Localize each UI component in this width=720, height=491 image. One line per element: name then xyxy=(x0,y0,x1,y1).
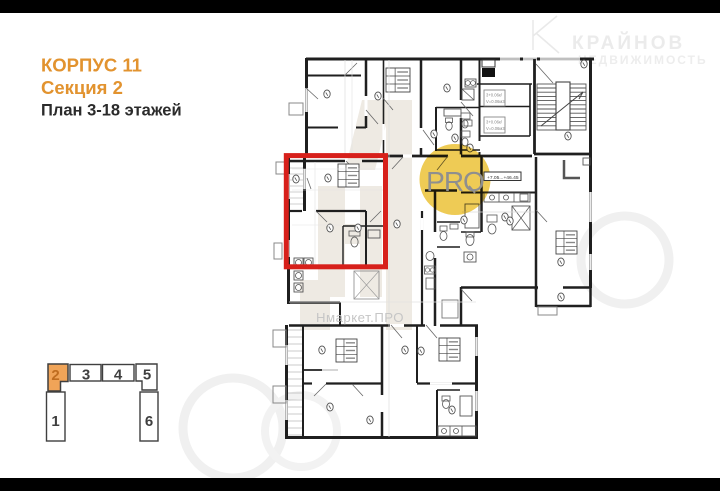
svg-text:Нмаркет.ПРО: Нмаркет.ПРО xyxy=(316,310,404,325)
svg-text:6: 6 xyxy=(145,413,153,430)
svg-text:V=0.06м3: V=0.06м3 xyxy=(486,126,505,131)
svg-text:КОРПУС 11: КОРПУС 11 xyxy=(41,55,142,76)
svg-text:+7.05...+46.45: +7.05...+46.45 xyxy=(487,175,519,181)
svg-text:4: 4 xyxy=(114,367,123,384)
svg-text:V=0.06м3: V=0.06м3 xyxy=(486,99,505,104)
svg-text:3: 3 xyxy=(82,367,90,384)
svg-text:НЕДВИЖИМОСТЬ: НЕДВИЖИМОСТЬ xyxy=(578,53,708,67)
svg-text:КРАЙНОВ: КРАЙНОВ xyxy=(572,32,685,54)
svg-text:Секция 2: Секция 2 xyxy=(41,77,123,98)
svg-text:2: 2 xyxy=(51,367,59,384)
svg-text:3+0.06к/: 3+0.06к/ xyxy=(486,93,503,98)
svg-text:3+0.06к/: 3+0.06к/ xyxy=(486,120,503,125)
svg-text:5: 5 xyxy=(143,367,151,384)
svg-text:План 3-18 этажей: План 3-18 этажей xyxy=(41,102,182,120)
svg-text:1: 1 xyxy=(51,413,59,430)
